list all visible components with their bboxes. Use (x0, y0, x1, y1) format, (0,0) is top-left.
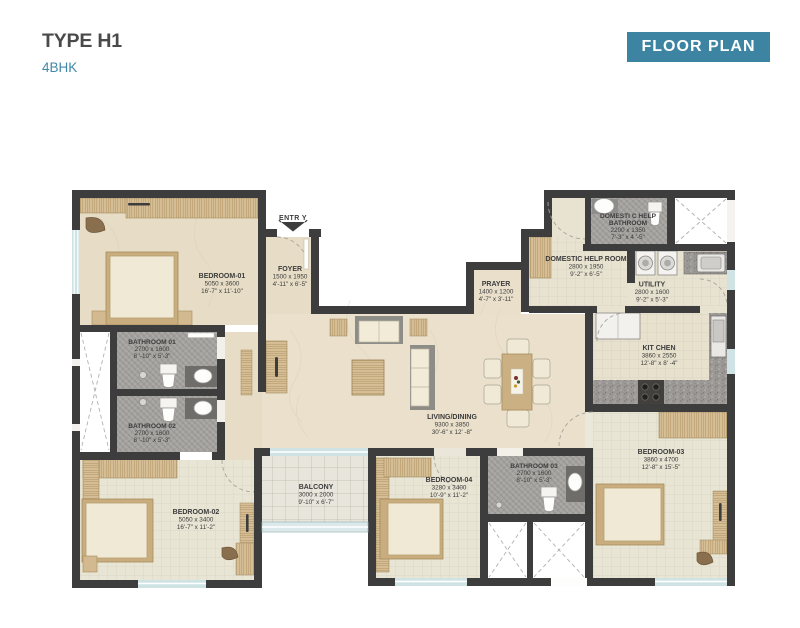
svg-text:8 '-10" x 5'-3": 8 '-10" x 5'-3" (134, 437, 171, 444)
svg-text:ENTR Y: ENTR Y (279, 215, 307, 222)
svg-text:9'-2" x 6'-5": 9'-2" x 6'-5" (570, 271, 602, 278)
svg-text:KIT CHEN: KIT CHEN (642, 345, 675, 352)
svg-text:5050 x 3400: 5050 x 3400 (179, 517, 214, 524)
svg-text:BATHROOM 02: BATHROOM 02 (128, 423, 176, 430)
svg-text:16'-7" x 11'-10": 16'-7" x 11'-10" (201, 288, 243, 295)
svg-text:3860 x 2550: 3860 x 2550 (642, 353, 677, 360)
svg-text:8 '-10" x 5'-3": 8 '-10" x 5'-3" (134, 353, 171, 360)
svg-text:4'-11" x 6'-5": 4'-11" x 6'-5" (273, 281, 308, 288)
svg-text:2700 x 1600: 2700 x 1600 (517, 470, 552, 477)
svg-text:4'-7" x 3'-11": 4'-7" x 3'-11" (479, 296, 514, 303)
svg-text:BATHROOM: BATHROOM (609, 220, 648, 227)
svg-text:BALCONY: BALCONY (299, 484, 334, 491)
svg-text:BATHROOM 01: BATHROOM 01 (128, 339, 176, 346)
svg-text:12'-8" x 15'-5": 12'-8" x 15'-5" (642, 464, 681, 471)
svg-text:3280 x 3400: 3280 x 3400 (432, 485, 467, 492)
svg-text:12'-8" x 8' -4": 12'-8" x 8' -4" (641, 360, 678, 367)
svg-text:16'-7" x 11'-2": 16'-7" x 11'-2" (177, 524, 215, 531)
svg-text:5050 x 3600: 5050 x 3600 (205, 281, 240, 288)
svg-text:BEDROOM-02: BEDROOM-02 (173, 509, 220, 516)
svg-text:DOMESTI C HELP: DOMESTI C HELP (600, 213, 657, 220)
svg-text:10'-9" x 11'-2": 10'-9" x 11'-2" (430, 492, 468, 499)
svg-text:PRAYER: PRAYER (482, 281, 511, 288)
svg-text:2200 x 1350: 2200 x 1350 (611, 227, 646, 234)
svg-text:8'-10" x 5'-3": 8'-10" x 5'-3" (516, 477, 551, 484)
svg-text:9300 x 3850: 9300 x 3850 (435, 422, 470, 429)
svg-text:UTILITY: UTILITY (639, 282, 666, 289)
svg-text:BEDROOM-04: BEDROOM-04 (426, 477, 473, 484)
svg-text:2800 x 1950: 2800 x 1950 (569, 264, 604, 271)
svg-text:3000 x 2000: 3000 x 2000 (299, 492, 334, 499)
svg-text:LIVING/DINING: LIVING/DINING (427, 414, 477, 421)
svg-text:BATHROOM 03: BATHROOM 03 (510, 463, 558, 470)
svg-text:7'-3" x 4 '-5": 7'-3" x 4 '-5" (611, 234, 644, 241)
svg-text:30'-6" x 12' -8": 30'-6" x 12' -8" (432, 429, 472, 436)
svg-text:FOYER: FOYER (278, 266, 302, 273)
svg-text:2800 x 1600: 2800 x 1600 (635, 289, 670, 296)
svg-text:9'-2" x 5'-3": 9'-2" x 5'-3" (636, 297, 668, 304)
svg-text:3860 x 4700: 3860 x 4700 (644, 457, 679, 464)
svg-text:BEDROOM-01: BEDROOM-01 (199, 273, 246, 280)
svg-text:1400 x 1200: 1400 x 1200 (479, 289, 514, 296)
svg-text:2700 x 1600: 2700 x 1600 (135, 430, 170, 437)
svg-text:2700 x 1600: 2700 x 1600 (135, 346, 170, 353)
svg-text:9'-10" x 6'-7": 9'-10" x 6'-7" (298, 499, 333, 506)
svg-text:1500 x 1950: 1500 x 1950 (273, 274, 308, 281)
svg-text:BEDROOM-03: BEDROOM-03 (638, 449, 685, 456)
svg-text:DOMESTIC HELP ROOM: DOMESTIC HELP ROOM (545, 256, 626, 263)
